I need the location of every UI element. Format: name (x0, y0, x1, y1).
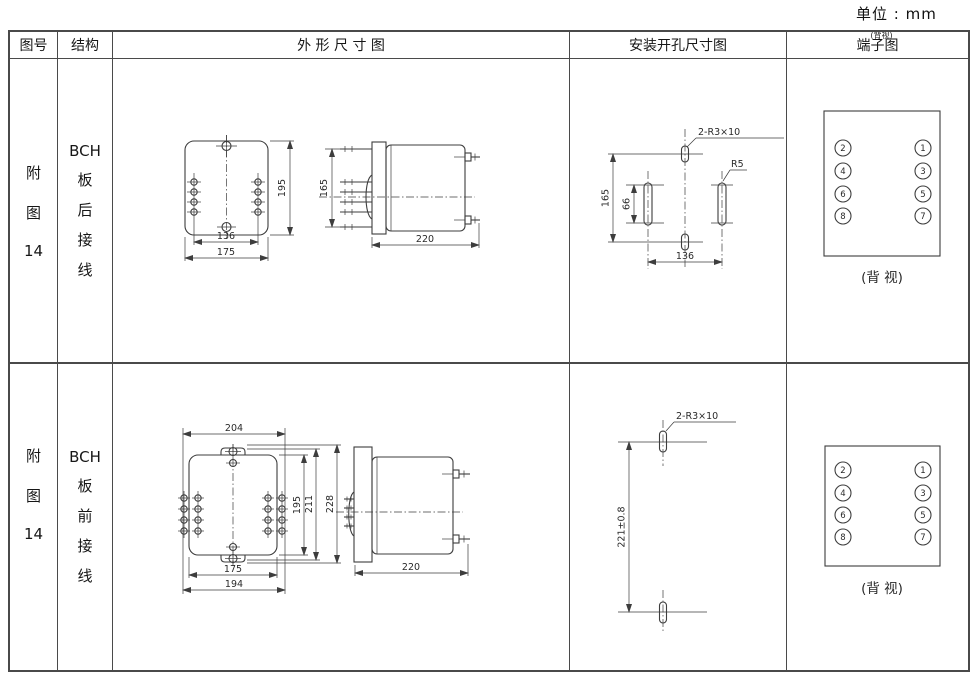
row2-terminal-diagram: 2 4 6 8 1 3 5 7 (背 视) (787, 364, 968, 670)
row1-front-view: 136 175 195 (185, 135, 294, 261)
terminal-number: 8 (840, 212, 845, 222)
row2-outline-drawing: 204 (113, 364, 569, 670)
side-screw-bottom (453, 535, 459, 543)
rear-view-caption: (背 视) (861, 581, 903, 597)
row2-terminal-cell: 2 4 6 8 1 3 5 7 (背 视) (787, 364, 968, 670)
dim-depth: 220 (402, 562, 420, 573)
dim-hole-height: 165 (601, 189, 612, 207)
dim-front-height: 195 (277, 179, 288, 197)
dim-pin-span: 136 (217, 231, 235, 242)
terminal-number: 4 (840, 489, 845, 499)
dim-body-width: 175 (217, 247, 235, 258)
row1-outline-drawing: 136 175 195 165 (113, 59, 569, 362)
row1-terminal-diagram: 2 4 6 8 1 3 5 7 (背 视) (787, 59, 968, 362)
row1-structure-line: BCH (69, 142, 101, 160)
row1-structure: BCH 板 后 接 线 (58, 59, 113, 364)
radius-note: R5 (731, 159, 744, 170)
row2-install-view: 2-R3×10 221±0.8 (617, 411, 737, 632)
dim-front-height: 195 (292, 496, 303, 514)
row2-figure-number: 14 (24, 525, 43, 543)
row2-structure-line: 前 (77, 505, 92, 526)
terminal-number: 1 (920, 466, 925, 476)
terminal-number: 4 (840, 167, 845, 177)
row2-install-cell: 2-R3×10 221±0.8 (570, 364, 787, 670)
row1-figure-number: 14 (24, 242, 43, 260)
side-screw-top (465, 153, 471, 161)
row2-front-view: 204 (178, 423, 341, 594)
header-outline-dim: 外 形 尺 寸 图 (113, 32, 570, 59)
terminal-number: 7 (920, 212, 925, 222)
dim-hole-span: 136 (676, 251, 694, 262)
header-install-dim: 安装开孔尺寸图 (570, 32, 787, 59)
rear-view-caption: (背 视) (861, 270, 903, 286)
terminal-number: 6 (840, 511, 845, 521)
row1-structure-line: 接 (77, 229, 92, 250)
unit-label: 单位 : mm (856, 3, 937, 24)
terminal-number: 1 (920, 144, 925, 154)
dim-slot-height: 66 (622, 198, 633, 210)
terminal-number: 2 (840, 144, 845, 154)
header-terminal-superscript: (背视) (870, 32, 892, 40)
header-structure: 结构 (58, 32, 113, 59)
terminal-number: 5 (920, 190, 925, 200)
terminal-number: 6 (840, 190, 845, 200)
row1-install-cell: 165 66 R5 2-R3×10 (570, 59, 787, 364)
side-screw-top (453, 470, 459, 478)
dim-overall-width: 194 (225, 579, 243, 590)
row2-structure-line: 接 (77, 535, 92, 556)
row1-install-view: 165 66 R5 2-R3×10 (601, 127, 785, 269)
header-terminal: (背视) 端子图 (787, 32, 968, 59)
row2-structure-line: BCH (69, 448, 101, 466)
row2-structure: BCH 板 前 接 线 (58, 364, 113, 670)
row1-side-view: 165 220 (319, 142, 480, 248)
terminal-number: 5 (920, 511, 925, 521)
side-screw-bottom (465, 216, 471, 224)
terminal-number: 2 (840, 466, 845, 476)
terminal-number: 3 (920, 167, 925, 177)
row2-terminal-view: 2 4 6 8 1 3 5 7 (背 视) (825, 446, 940, 597)
row2-structure-line: 板 (77, 475, 92, 496)
row1-structure-line: 板 (77, 169, 92, 190)
dim-side-height: 165 (319, 179, 330, 197)
dim-overall-height: 228 (325, 495, 336, 513)
dim-top-width: 204 (225, 423, 243, 434)
row1-structure-line: 线 (77, 259, 92, 280)
dim-mid-height: 211 (304, 495, 315, 513)
row1-structure-line: 后 (77, 199, 92, 220)
terminal-number: 7 (920, 533, 925, 543)
row1-figure-char: 附 (26, 162, 41, 183)
dim-hole-height: 221±0.8 (617, 506, 628, 547)
dim-depth: 220 (416, 234, 434, 245)
row2-install-drawing: 2-R3×10 221±0.8 (570, 364, 786, 670)
header-figure-no: 图号 (10, 32, 58, 59)
row2-figure-char: 图 (26, 485, 41, 506)
row2-structure-line: 线 (77, 565, 92, 586)
row1-figure-no: 附 图 14 (10, 59, 58, 364)
row1-install-drawing: 165 66 R5 2-R3×10 (570, 59, 786, 362)
slot-note: 2-R3×10 (676, 411, 718, 422)
row2-side-view: 220 (336, 447, 470, 576)
row1-terminal-view: 2 4 6 8 1 3 5 7 (背 视) (824, 111, 940, 286)
row2-figure-no: 附 图 14 (10, 364, 58, 670)
row2-outline-cell: 204 (113, 364, 570, 670)
row1-figure-char: 图 (26, 202, 41, 223)
slot-note: 2-R3×10 (698, 127, 740, 138)
row1-terminal-cell: 2 4 6 8 1 3 5 7 (背 视) (787, 59, 968, 364)
terminal-number: 8 (840, 533, 845, 543)
spec-table: 图号 结构 外 形 尺 寸 图 安装开孔尺寸图 (背视) 端子图 附 图 14 … (8, 30, 970, 672)
terminal-number: 3 (920, 489, 925, 499)
row1-outline-cell: 136 175 195 165 (113, 59, 570, 364)
row2-figure-char: 附 (26, 445, 41, 466)
dim-body-width: 175 (224, 564, 242, 575)
